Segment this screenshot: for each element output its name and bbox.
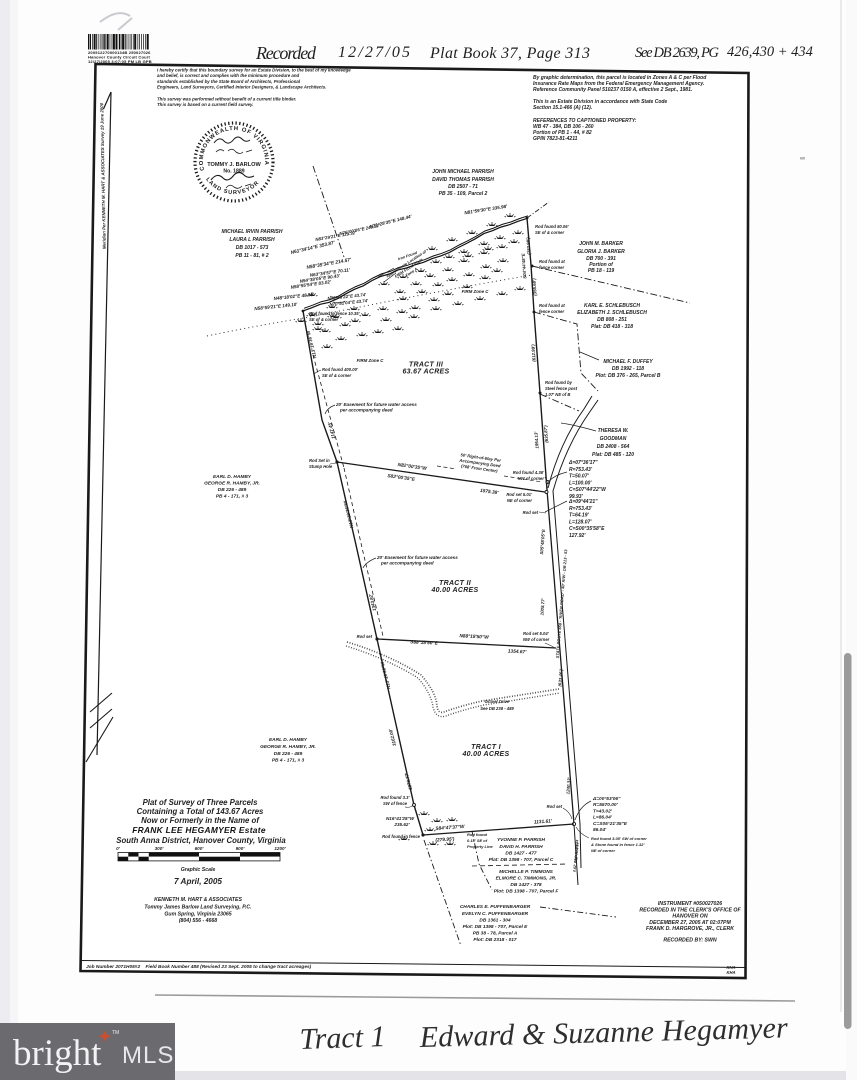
svg-text:TOMMY J. BARLOW: TOMMY J. BARLOW: [207, 162, 261, 168]
svg-text:per accompanying deed: per accompanying deed: [380, 561, 434, 566]
svg-text:DB 226 - 489: DB 226 - 489: [218, 487, 247, 493]
svg-text:See DB 238 - 489: See DB 238 - 489: [480, 706, 514, 711]
svg-text:fence corner: fence corner: [539, 309, 565, 314]
svg-text:Engineers, Land Surveyors, Cer: Engineers, Land Surveyors, Certified Int…: [157, 85, 326, 90]
svg-text:DB 1361 - 304: DB 1361 - 304: [479, 918, 511, 924]
svg-text:EARL D. HAMBY: EARL D. HAMBY: [269, 737, 308, 743]
svg-text:86.04': 86.04': [593, 827, 607, 833]
svg-text:& Stone found in fence 1.32': & Stone found in fence 1.32': [591, 842, 645, 847]
svg-text:and belief, is correct and com: and belief, is correct and complies with…: [157, 73, 300, 78]
svg-text:GOODMAN: GOODMAN: [600, 436, 627, 442]
svg-text:63.67 ACRES: 63.67 ACRES: [402, 369, 449, 376]
svg-text:L=86.04': L=86.04': [593, 815, 613, 821]
svg-text:KARL E. SCHLEBUSCH: KARL E. SCHLEBUSCH: [584, 303, 640, 309]
svg-text:DAVID THOMAS PARRISH: DAVID THOMAS PARRISH: [432, 177, 494, 183]
svg-text:NE of corner: NE of corner: [507, 498, 532, 503]
svg-text:GLORIA J. BARKER: GLORIA J. BARKER: [577, 249, 625, 255]
svg-text:Rod found: Rod found: [467, 832, 488, 837]
svg-text:TRACT III: TRACT III: [409, 362, 444, 369]
svg-text:THERESA W.: THERESA W.: [598, 428, 629, 434]
svg-text:N16°41'28"W: N16°41'28"W: [386, 816, 415, 821]
svg-text:Rod set 5.01': Rod set 5.01': [506, 492, 533, 497]
svg-text:T=43.02': T=43.02': [593, 808, 613, 814]
svg-text:235.62': 235.62': [393, 822, 410, 827]
svg-text:Recorded: Recorded: [255, 43, 317, 63]
svg-text:20' Easement for future water: 20' Easement for future water access: [376, 555, 458, 560]
svg-text:C=S07°44'22"W: C=S07°44'22"W: [569, 487, 607, 493]
svg-text:12/27/2005 3:07:05 PM LB GPB: 12/27/2005 3:07:05 PM LB GPB: [88, 59, 152, 64]
svg-text:NE of corner: NE of corner: [591, 848, 615, 853]
svg-text:Plot: DB 376 - 265, Parcel: Plot: DB 376 - 265, Parcel B: [595, 373, 660, 379]
svg-text:Rod found 4.36': Rod found 4.36': [513, 470, 545, 475]
svg-text:CHARLES E. PUFFENBARGER: CHARLES E. PUFFENBARGER: [460, 904, 531, 910]
svg-text:MICHAEL F. DUFFEY: MICHAEL F. DUFFEY: [603, 359, 653, 365]
svg-text:MICHAEL IRVIN PARRISH: MICHAEL IRVIN PARRISH: [222, 229, 283, 235]
svg-text:Rod set: Rod set: [523, 510, 539, 515]
svg-text:DB 2507 - 71: DB 2507 - 71: [448, 184, 478, 190]
svg-text:HANOVER ON: HANOVER ON: [672, 914, 707, 920]
svg-text:standards established by the S: standards established by the State Board…: [157, 79, 301, 84]
svg-text:MLS: MLS: [122, 1042, 174, 1069]
svg-text:Rod set: Rod set: [357, 634, 373, 639]
svg-text:R=5570.00': R=5570.00': [593, 802, 619, 808]
svg-text:Δ=09°44'21": Δ=09°44'21": [568, 499, 598, 505]
svg-text:JOHN MICHAEL PARRISH: JOHN MICHAEL PARRISH: [432, 169, 494, 175]
svg-text:Rod found 3.3': Rod found 3.3': [381, 795, 411, 800]
svg-text:0.15' SE of: 0.15' SE of: [467, 838, 488, 843]
svg-text:Rod set 5.04': Rod set 5.04': [523, 631, 550, 636]
svg-text:DB 226 - 489: DB 226 - 489: [274, 751, 303, 757]
svg-text:YVONNE P. PARRISH: YVONNE P. PARRISH: [497, 837, 546, 843]
svg-text:PB 18 - 119: PB 18 - 119: [588, 268, 615, 274]
svg-text:Rod found in fence 10.35': Rod found in fence 10.35': [309, 311, 361, 316]
svg-text:NW of corner: NW of corner: [523, 637, 550, 642]
svg-text:600': 600': [195, 846, 205, 851]
svg-text:LAURA L PARRISH: LAURA L PARRISH: [229, 237, 275, 243]
svg-text:Section 15.1-466 (A) (12).: Section 15.1-466 (A) (12).: [533, 105, 592, 111]
svg-text:R=753.43': R=753.43': [569, 506, 593, 512]
svg-text:fence corner: fence corner: [539, 265, 565, 270]
svg-text:ELIZABETH J. SCHLEBUSCH: ELIZABETH J. SCHLEBUSCH: [577, 310, 647, 316]
svg-text:Plot: DB 1398 - 707, Parce: Plot: DB 1398 - 707, Parcel F: [494, 889, 560, 895]
svg-text:SW of fence: SW of fence: [383, 801, 408, 806]
svg-text:Gravel Drive: Gravel Drive: [485, 699, 510, 704]
svg-text:ELMORE C. TIMMONS, JR.: ELMORE C. TIMMONS, JR.: [496, 876, 557, 882]
svg-text:300': 300': [155, 846, 165, 851]
svg-text:900': 900': [236, 846, 246, 851]
svg-text:20' Easement for future water: 20' Easement for future water access: [335, 402, 417, 407]
svg-text:KHA: KHA: [726, 970, 735, 975]
svg-text:FRANK LEE HEGAMYER Estate: FRANK LEE HEGAMYER Estate: [132, 825, 266, 835]
svg-text:DB 1427 - 477: DB 1427 - 477: [505, 851, 537, 857]
svg-text:DB 2408 - 564: DB 2408 - 564: [597, 444, 630, 450]
svg-text:Δ=00°53'06": Δ=00°53'06": [592, 796, 621, 802]
svg-text:R=753.43': R=753.43': [569, 467, 593, 473]
svg-text:See DB 2639, PG: See DB 2639, PG: [635, 45, 720, 61]
svg-text:SE of & corner: SE of & corner: [309, 317, 338, 322]
svg-text:Rod found by: Rod found by: [545, 380, 573, 385]
svg-text:INSTRUMENT #050027026: INSTRUMENT #050027026: [658, 901, 722, 907]
svg-text:FIRM Zone C: FIRM Zone C: [462, 289, 490, 294]
svg-text:Steel fence post: Steel fence post: [545, 386, 578, 391]
svg-text:TRACT I: TRACT I: [471, 744, 501, 751]
svg-text:C=S00°35'58"E: C=S00°35'58"E: [569, 526, 605, 532]
svg-text:426,430 + 434: 426,430 + 434: [727, 44, 813, 60]
svg-text:Containing a Total of 143.67 A: Containing a Total of 143.67 Acres: [137, 807, 264, 816]
svg-text:Plat: DB 418 - 318: Plat: DB 418 - 318: [591, 324, 633, 330]
svg-text:RECORDED BY: SWN: RECORDED BY: SWN: [663, 938, 717, 944]
svg-text:South Anna District, Hanover C: South Anna District, Hanover County, Vir…: [116, 836, 286, 845]
svg-text:GEORGE R. HAMBY, JR.: GEORGE R. HAMBY, JR.: [260, 744, 316, 750]
svg-text:This survey was performed with: This survey was performed without benefi…: [157, 97, 296, 102]
svg-text:40.00 ACRES: 40.00 ACRES: [430, 587, 478, 594]
svg-text:EARL D. HAMBY: EARL D. HAMBY: [213, 474, 252, 480]
svg-text:DB 1427 - 378: DB 1427 - 378: [510, 882, 542, 888]
svg-text:FRANK D. HARGROVE, JR., CLERK: FRANK D. HARGROVE, JR., CLERK: [646, 926, 735, 932]
svg-text:L=128.07': L=128.07': [569, 519, 592, 525]
svg-text:1.07' NE of B: 1.07' NE of B: [545, 392, 570, 397]
svg-text:Tommy James Barlow Land Survey: Tommy James Barlow Land Surveying, P.C.: [144, 905, 251, 911]
svg-text:PB 4 - 171, # 3: PB 4 - 171, # 3: [272, 758, 305, 764]
svg-text:Rod found 50.06': Rod found 50.06': [535, 224, 570, 229]
svg-text:7 April, 2005: 7 April, 2005: [174, 877, 222, 886]
svg-text:1354.67': 1354.67': [508, 649, 528, 656]
svg-text:Plot: DB 2318 - 017: Plot: DB 2318 - 017: [473, 937, 517, 943]
svg-text:KENNETH M. HART & ASSOCIATES: KENNETH M. HART & ASSOCIATES: [154, 897, 242, 903]
svg-text:JOHN M. BARKER: JOHN M. BARKER: [579, 241, 623, 247]
svg-text:T=64.19': T=64.19': [569, 513, 589, 519]
svg-text:127.92': 127.92': [569, 533, 586, 539]
svg-text:Job Number 2071H05#2 Field: Job Number 2071H05#2 Field Book Number 4…: [86, 964, 312, 970]
svg-text:GPIN 7823-81-4211: GPIN 7823-81-4211: [533, 136, 578, 142]
svg-text:DAVID H. PARRISH: DAVID H. PARRISH: [499, 844, 543, 850]
svg-text:GEORGE R. HAMBY, JR.: GEORGE R. HAMBY, JR.: [204, 481, 260, 487]
svg-text:Plat Book 37, Page 313: Plat Book 37, Page 313: [429, 45, 590, 62]
svg-text:Plot: DB 1398 - 707, Parce: Plot: DB 1398 - 707, Parcel E: [463, 924, 529, 930]
svg-text:DB 1992 - 118: DB 1992 - 118: [612, 366, 644, 372]
svg-text:Graphic Scale: Graphic Scale: [181, 867, 216, 873]
svg-text:TM: TM: [112, 1030, 119, 1036]
svg-text:Reference Community Panel 5102: Reference Community Panel 510237 0150 A,…: [533, 87, 692, 93]
svg-text:Plat: DB 1398 - 707, Parce: Plat: DB 1398 - 707, Parcel C: [489, 857, 554, 863]
svg-text:bright: bright: [13, 1033, 102, 1074]
svg-text:SE of & corner: SE of & corner: [535, 230, 564, 235]
svg-text:DB 1017 - 573: DB 1017 - 573: [236, 245, 269, 251]
svg-text:Now or Formerly in the Name of: Now or Formerly in the Name of: [141, 816, 260, 825]
svg-text:Property Line: Property Line: [467, 844, 494, 849]
svg-text:TRACT II: TRACT II: [439, 580, 472, 587]
svg-text:SE of & corner: SE of & corner: [322, 373, 351, 378]
svg-text:(804) 556 - 4668: (804) 556 - 4668: [179, 918, 217, 924]
svg-text:Δ=07°36'17": Δ=07°36'17": [568, 460, 598, 466]
svg-text:PB 35 - 109, Parcel 2: PB 35 - 109, Parcel 2: [439, 191, 488, 197]
svg-text:1200': 1200': [274, 846, 286, 851]
svg-text:Plat of Survey of Three Parcel: Plat of Survey of Three Parcels: [143, 798, 258, 807]
svg-text:Stump Hole: Stump Hole: [309, 464, 333, 469]
svg-text:EVELYN C. PUFFENBARGER: EVELYN C. PUFFENBARGER: [462, 911, 529, 917]
svg-text:I hereby certify that this bou: I hereby certify that this boundary surv…: [157, 68, 351, 73]
svg-text:40.00 ACRES: 40.00 ACRES: [461, 751, 509, 758]
svg-text:Gum Spring, Virginia 23065: Gum Spring, Virginia 23065: [164, 912, 231, 918]
svg-text:Plat: DB 485 - 120: Plat: DB 485 - 120: [592, 452, 634, 458]
svg-text:This survey is based on a curr: This survey is based on a current field …: [157, 102, 253, 107]
svg-text:Rod Set in: Rod Set in: [309, 458, 330, 463]
svg-text:C=S05°21'35"E: C=S05°21'35"E: [593, 821, 628, 827]
svg-text:Rod found 3.05' SW of corner: Rod found 3.05' SW of corner: [591, 836, 647, 841]
svg-text:Rod found at: Rod found at: [539, 303, 565, 308]
svg-text:Rod found in fence: Rod found in fence: [382, 834, 421, 839]
svg-text:PB 4 - 171, # 3: PB 4 - 171, # 3: [216, 494, 249, 500]
svg-text:per accompanying deed: per accompanying deed: [339, 408, 393, 413]
svg-text:MICHELLE P. TIMMONS: MICHELLE P. TIMMONS: [499, 869, 554, 875]
svg-text:PB 11 - 81, # 2: PB 11 - 81, # 2: [235, 253, 268, 259]
svg-text:Rod found at: Rod found at: [539, 259, 565, 264]
svg-text:T=50.07': T=50.07': [569, 474, 589, 480]
svg-text:Tract 1: Tract 1: [299, 1020, 386, 1056]
svg-text:Rod set: Rod set: [547, 804, 563, 809]
svg-text:PB 38 - 78, Parcel A: PB 38 - 78, Parcel A: [473, 931, 518, 937]
svg-text:DB 808 - 251: DB 808 - 251: [597, 317, 627, 323]
svg-text:Rod found 400.00': Rod found 400.00': [322, 367, 359, 372]
svg-text:L=100.00': L=100.00': [569, 480, 592, 486]
svg-text:FIRM Zone C: FIRM Zone C: [357, 358, 385, 363]
